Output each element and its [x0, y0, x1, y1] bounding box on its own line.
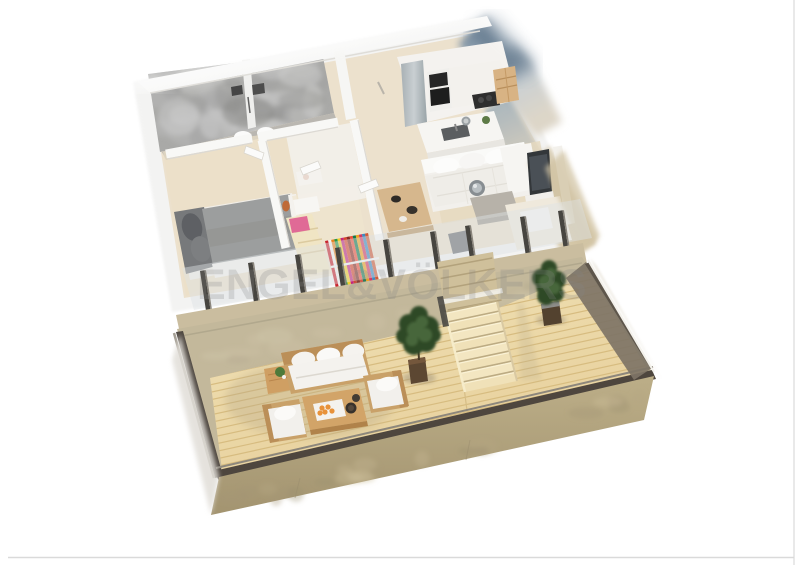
- svg-text:ENGEL&VÖLKERS: ENGEL&VÖLKERS: [197, 261, 587, 309]
